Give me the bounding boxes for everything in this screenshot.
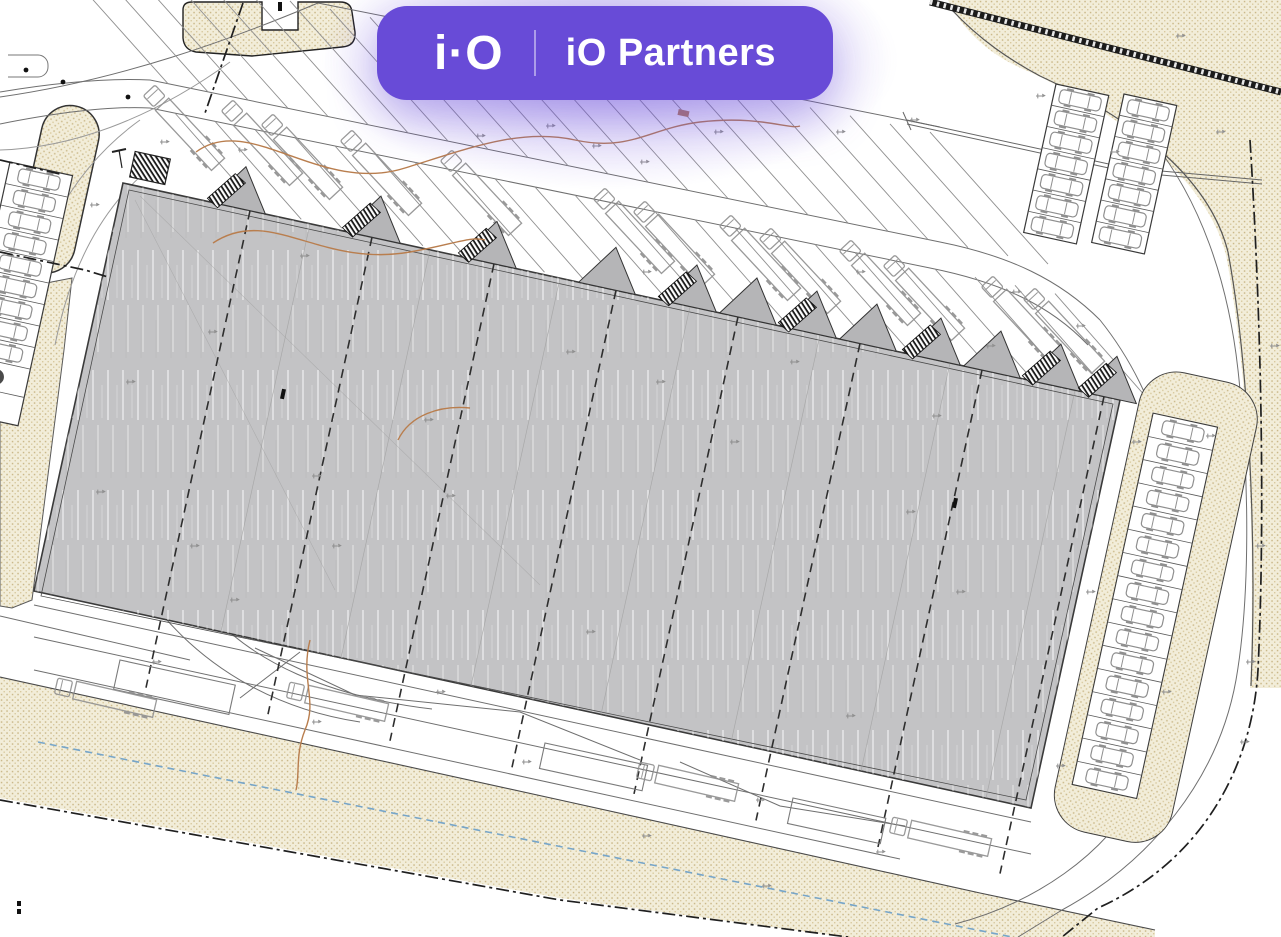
brand-name: iO Partners [566, 32, 776, 75]
bollards [24, 68, 131, 100]
dock-ramp-hatched [130, 151, 171, 184]
site-plan-page: i·O iO Partners [0, 0, 1281, 937]
brand-logo-icon: i·O [434, 26, 504, 81]
brand-divider [534, 30, 536, 76]
brand-badge: i·O iO Partners [377, 6, 833, 100]
